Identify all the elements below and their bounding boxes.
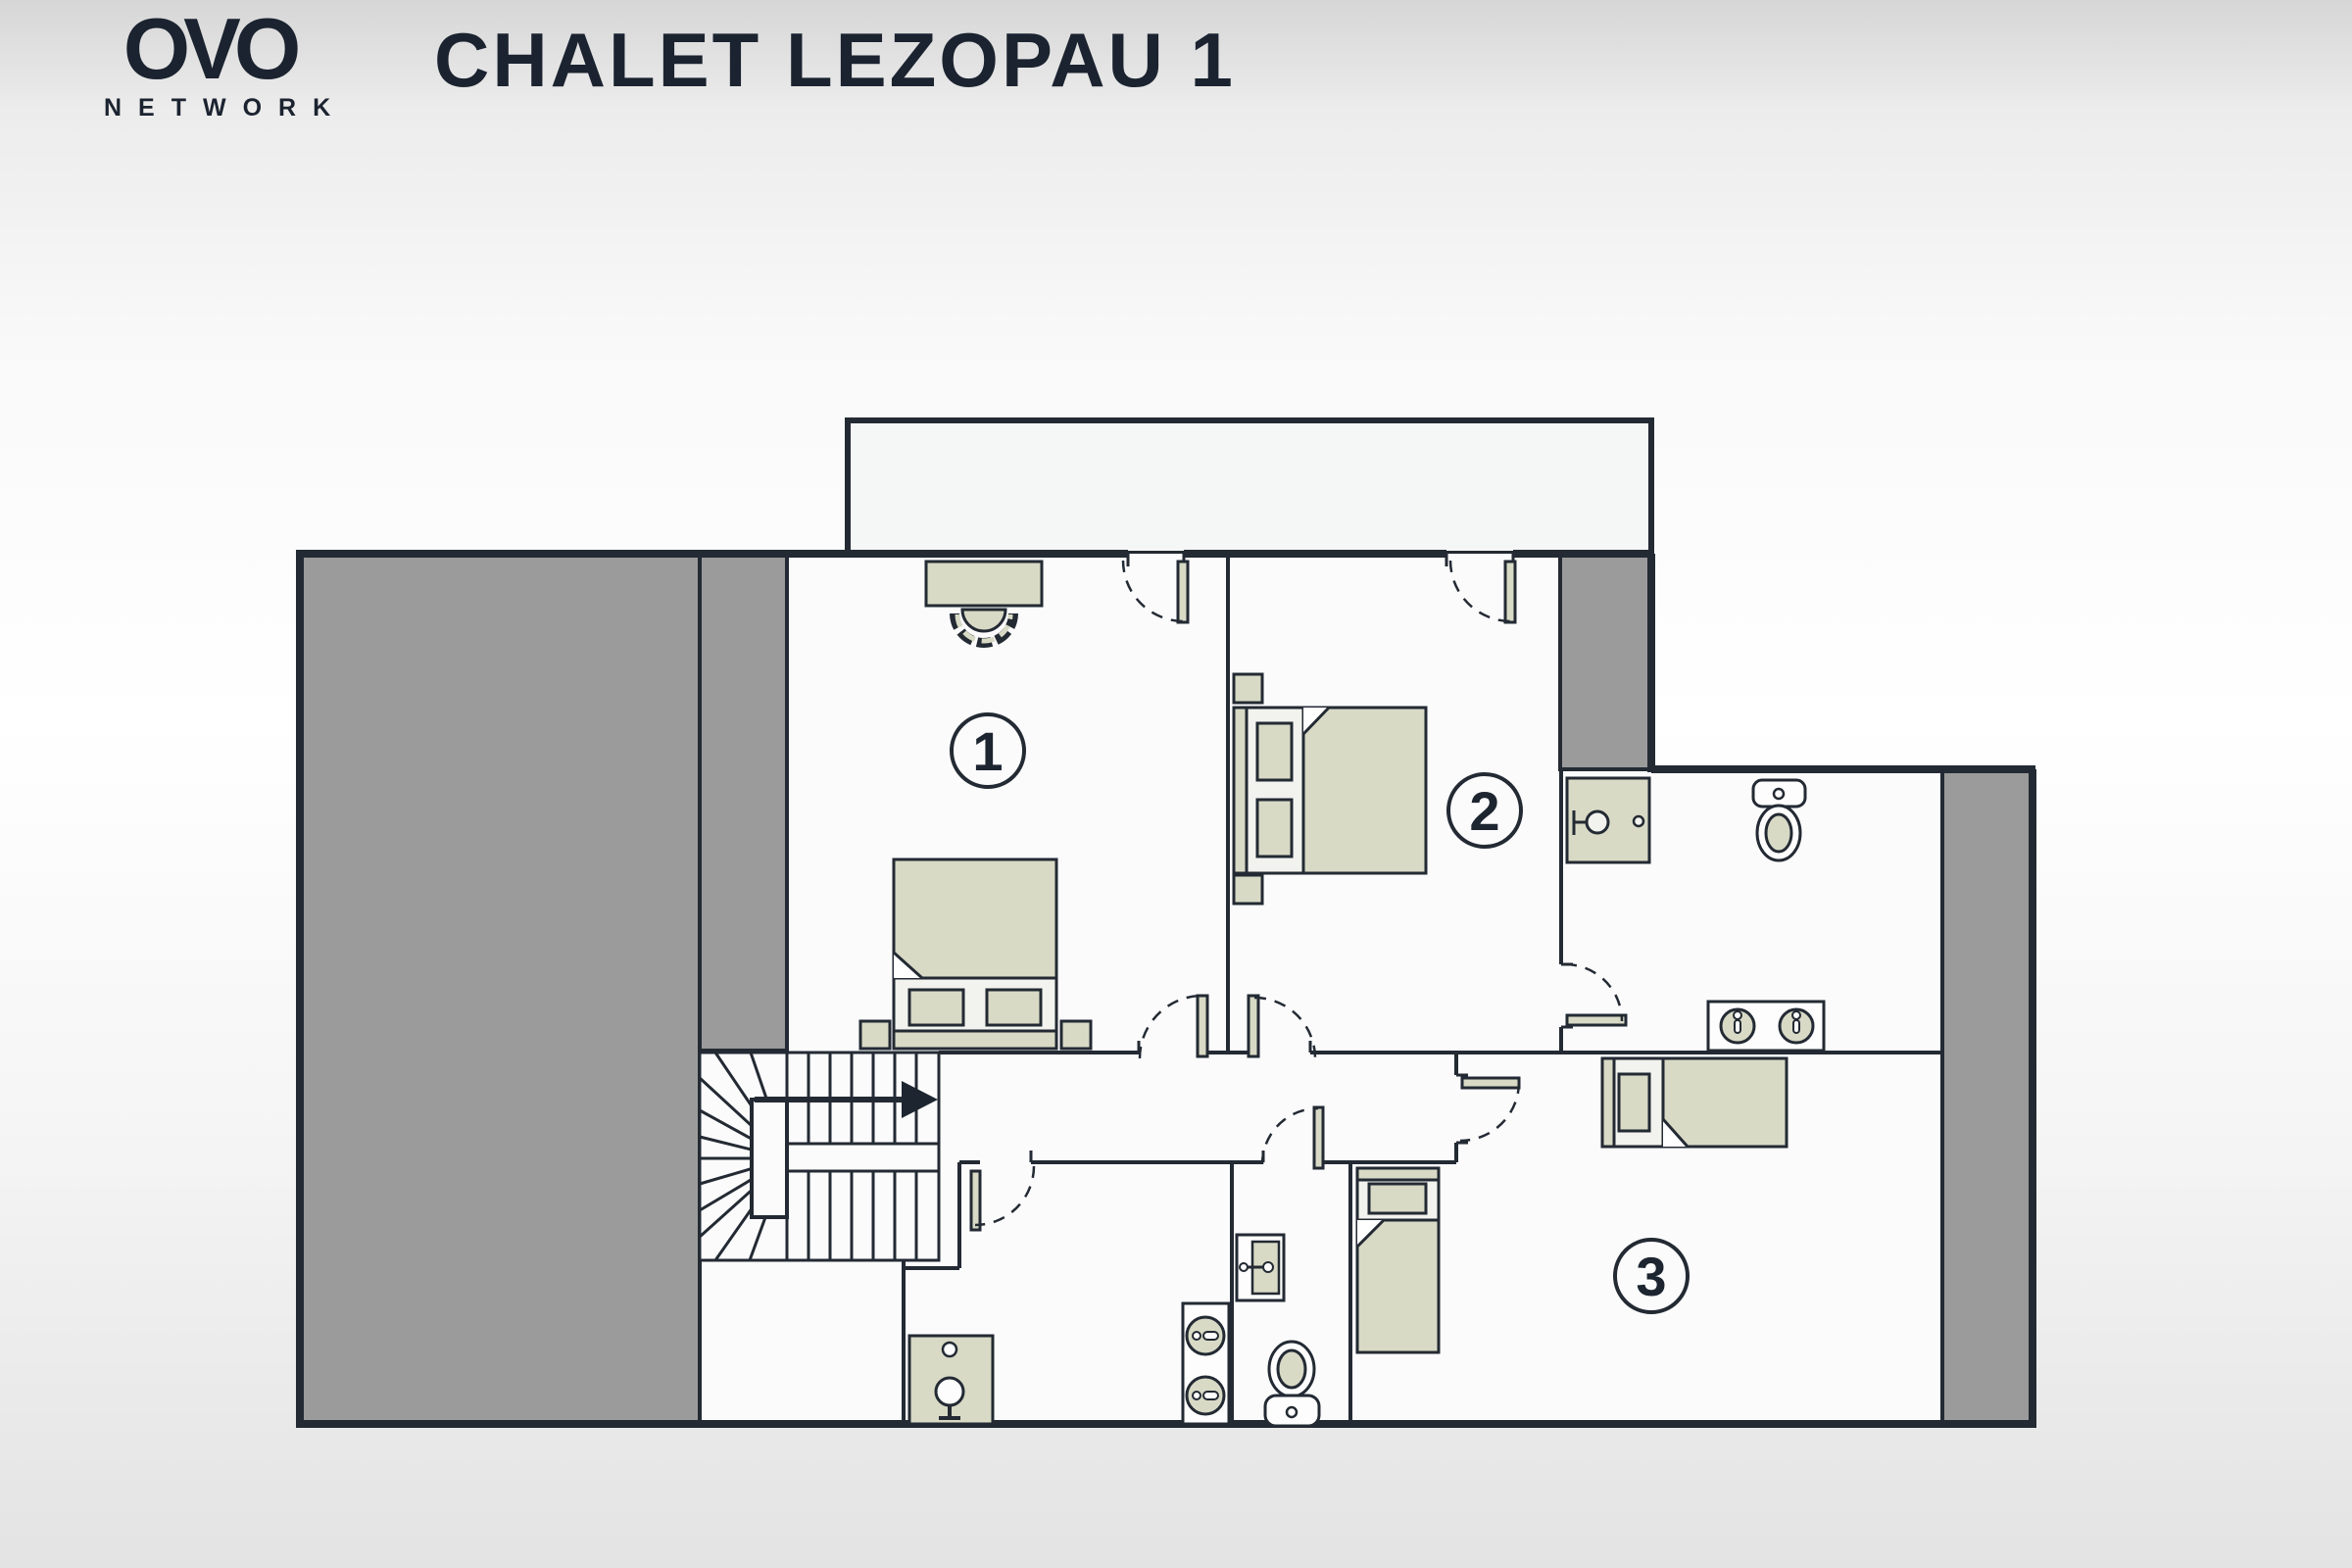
wall-basin	[1237, 1235, 1284, 1300]
balcony	[848, 420, 1651, 554]
mattress	[1303, 708, 1426, 873]
floorplan-canvas: 1 2 3	[0, 0, 2352, 1568]
pillow	[1619, 1074, 1649, 1131]
single-bed-vertical	[1357, 1168, 1439, 1352]
pillow	[1369, 1184, 1426, 1213]
nightstand	[1061, 1021, 1091, 1049]
headboard	[1234, 708, 1247, 873]
terrace-left	[300, 554, 700, 1424]
nightstand	[1234, 875, 1262, 904]
room3-number: 3	[1636, 1246, 1666, 1307]
pillow	[987, 990, 1041, 1025]
toilet-bottom	[1265, 1342, 1319, 1426]
double-bed-room1	[894, 859, 1056, 1049]
double-bed-room2	[1234, 708, 1426, 873]
staircase	[700, 1053, 939, 1260]
nightstand	[860, 1021, 890, 1049]
room1-badge: 1	[952, 714, 1024, 787]
room2-badge: 2	[1448, 774, 1521, 847]
pillow	[1257, 723, 1292, 780]
terrace-strip-topright	[1560, 554, 1651, 769]
shower	[1567, 778, 1649, 862]
double-sink-vanity	[1708, 1002, 1824, 1051]
single-bed-horizontal	[1602, 1058, 1787, 1147]
room2-number: 2	[1469, 780, 1499, 842]
mattress	[1357, 1220, 1439, 1352]
room1-number: 1	[972, 720, 1003, 782]
room2-furniture	[1234, 674, 1426, 904]
pillow	[909, 990, 963, 1025]
toilet-top	[1753, 780, 1805, 860]
room3-badge: 3	[1615, 1240, 1688, 1312]
headboard	[1357, 1168, 1439, 1180]
double-round-sink-vanity	[1183, 1303, 1229, 1424]
drain	[1634, 816, 1643, 826]
nightstand	[1234, 674, 1262, 703]
mattress	[1663, 1058, 1787, 1147]
terrace-strip-right	[1942, 769, 2033, 1424]
washbasin-unit	[909, 1336, 993, 1424]
desk	[926, 562, 1042, 606]
stair-core	[752, 1100, 787, 1217]
headboard	[1602, 1058, 1614, 1147]
footboard	[894, 1031, 1056, 1049]
pillow	[1257, 800, 1292, 857]
terrace-strip-upper	[700, 554, 787, 1051]
